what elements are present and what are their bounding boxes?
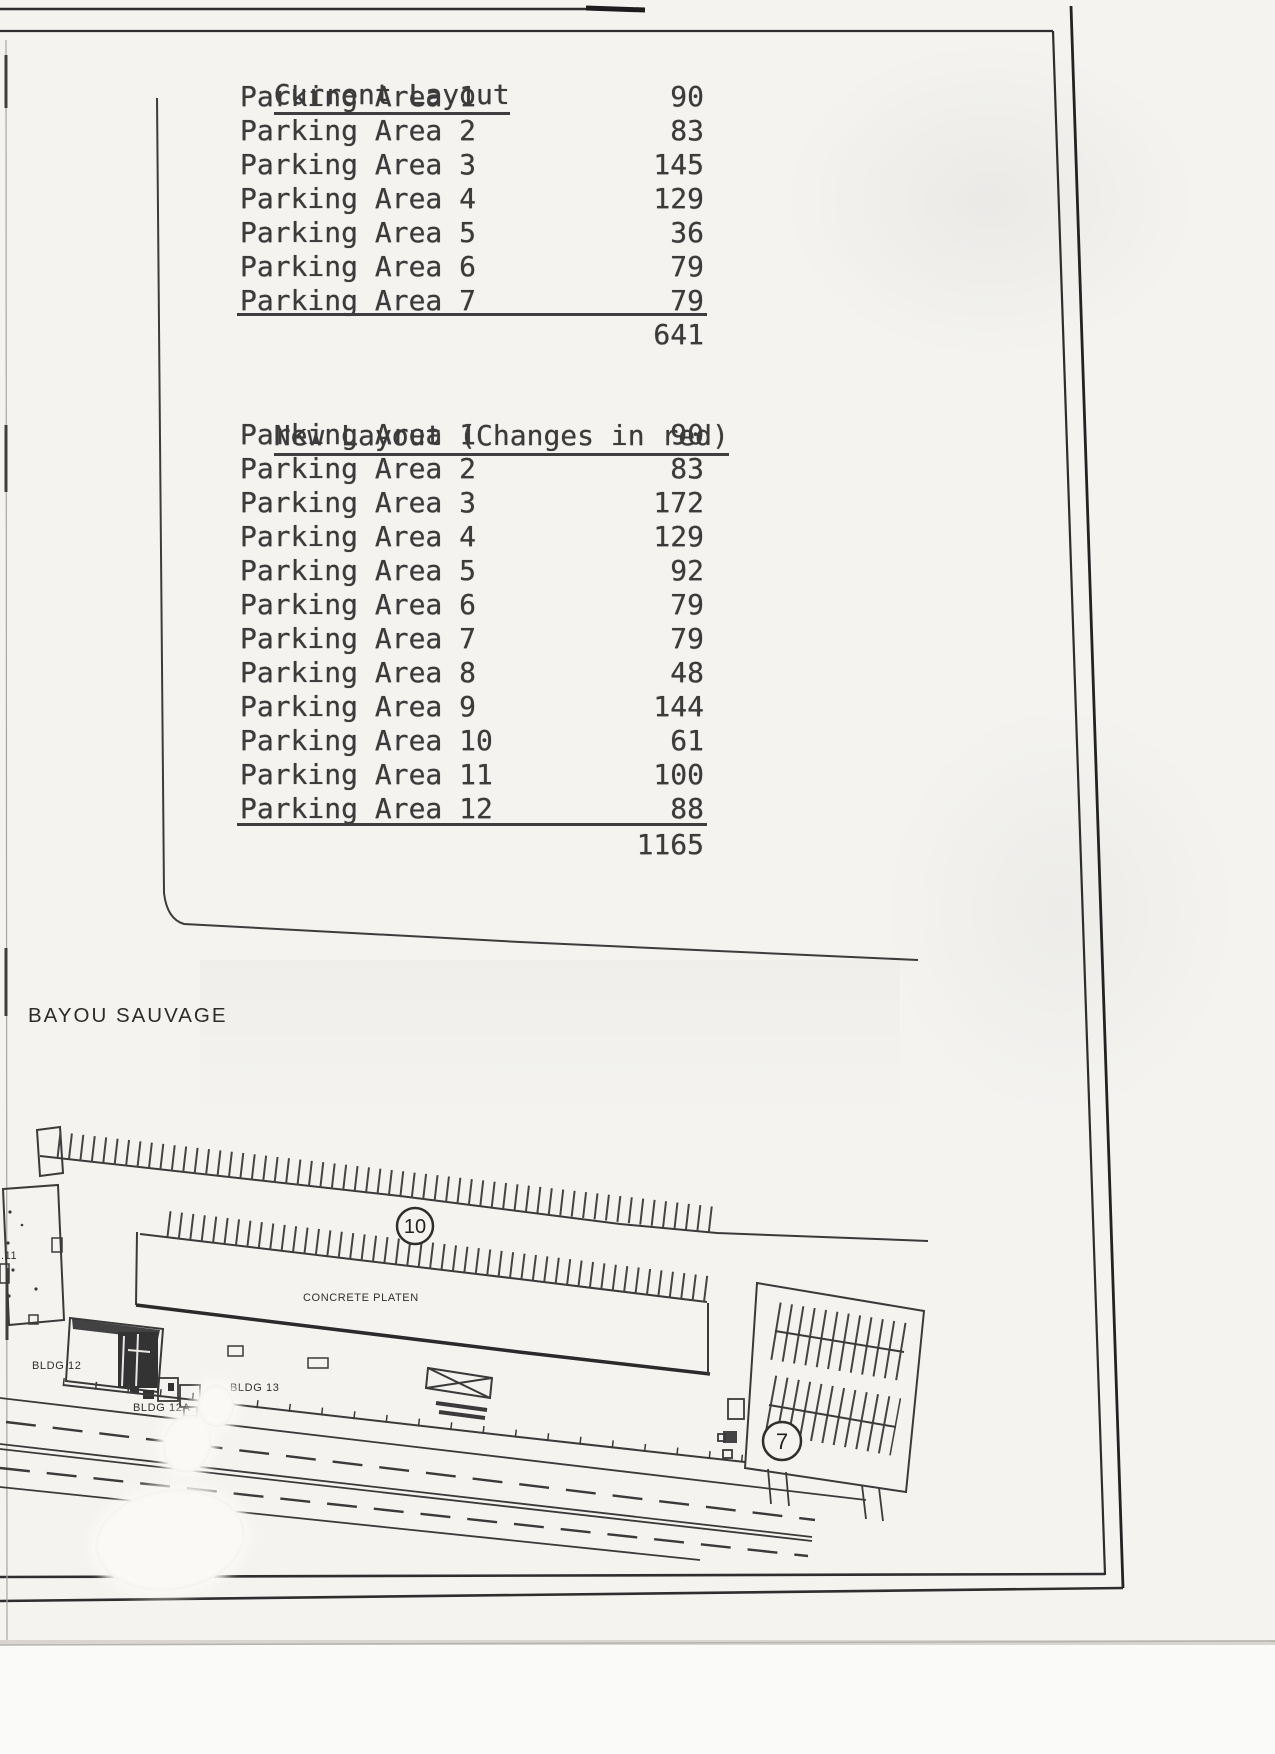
parking-row: Parking Area 190 (240, 80, 704, 114)
paper-bottom-edge (0, 1640, 1275, 1645)
parking-row-label: Parking Area 2 (240, 452, 476, 486)
concrete-platen-slab (136, 1232, 710, 1374)
area-markers: 10 7 (397, 1208, 801, 1460)
parking-row-value: 144 (653, 690, 704, 724)
parking-row-label: Parking Area 4 (240, 520, 476, 554)
parking-row: Parking Area 11100 (240, 758, 704, 792)
parking-row-label: Parking Area 11 (240, 758, 493, 792)
parking-row-label: Parking Area 8 (240, 656, 476, 690)
parking-row-value: 90 (670, 418, 704, 452)
parking-row: Parking Area 190 (240, 418, 704, 452)
parking-row: Parking Area 1061 (240, 724, 704, 758)
bldg-13-label: BLDG 13 (230, 1382, 279, 1394)
parking-row-label: Parking Area 5 (240, 554, 476, 588)
parking-row: Parking Area 592 (240, 554, 704, 588)
parking-row: Parking Area 4129 (240, 182, 704, 216)
parking-row: Parking Area 779 (240, 622, 704, 656)
parking-row-value: 79 (670, 250, 704, 284)
parking-row-label: Parking Area 3 (240, 486, 476, 520)
parking-row-label: Parking Area 7 (240, 622, 476, 656)
parking-row: Parking Area 3172 (240, 486, 704, 520)
parking-row-label: Parking Area 2 (240, 114, 476, 148)
parking-row-label: Parking Area 12 (240, 792, 493, 826)
parking-row-value: 145 (653, 148, 704, 182)
parking-row: Parking Area 1288 (240, 792, 704, 826)
parking-row: Parking Area 536 (240, 216, 704, 250)
parking-row-label: Parking Area 1 (240, 418, 476, 452)
parking-row: Parking Area 283 (240, 114, 704, 148)
current-layout-table: Parking Area 190Parking Area 283Parking … (240, 80, 704, 318)
concrete-platen-label: CONCRETE PLATEN (303, 1292, 419, 1304)
parking-row-value: 100 (653, 758, 704, 792)
parking-row-value: 129 (653, 182, 704, 216)
parking-row: Parking Area 283 (240, 452, 704, 486)
parking-row-value: 129 (653, 520, 704, 554)
parking-row-label: Parking Area 10 (240, 724, 493, 758)
bldg-12a-label: BLDG 12A (133, 1402, 190, 1414)
parking-row-value: 61 (670, 724, 704, 758)
parking-row-label: Parking Area 5 (240, 216, 476, 250)
parking-row-label: Parking Area 6 (240, 250, 476, 284)
parking-row-value: 92 (670, 554, 704, 588)
whiteout-smudge (198, 1385, 234, 1427)
parking-row: Parking Area 679 (240, 588, 704, 622)
parking-row: Parking Area 3145 (240, 148, 704, 182)
parking-row-value: 83 (670, 114, 704, 148)
parking-row-value: 48 (670, 656, 704, 690)
parking-row-value: 83 (670, 452, 704, 486)
parking-row-value: 172 (653, 486, 704, 520)
parking-row-value: 79 (670, 588, 704, 622)
current-total-rule (237, 313, 707, 316)
new-total-value: 1165 (440, 830, 704, 860)
parking-row: Parking Area 9144 (240, 690, 704, 724)
parking-band-top (37, 1127, 928, 1241)
parking-row-value: 79 (670, 622, 704, 656)
parking-row-label: Parking Area 4 (240, 182, 476, 216)
site-plan (0, 1127, 928, 1560)
parking-row-value: 36 (670, 216, 704, 250)
parking-row-label: Parking Area 9 (240, 690, 476, 724)
area-10-marker: 10 (404, 1216, 426, 1238)
parking-row-label: Parking Area 1 (240, 80, 476, 114)
parking-row-label: Parking Area 6 (240, 588, 476, 622)
new-layout-table: Parking Area 190Parking Area 283Parking … (240, 418, 704, 826)
bldg-12-label: BLDG 12 (32, 1360, 81, 1372)
parking-row: Parking Area 848 (240, 656, 704, 690)
bayou-sauvage-label: BAYOU SAUVAGE (28, 1004, 228, 1027)
parking-row-value: 88 (670, 792, 704, 826)
parking-lot-area7 (745, 1283, 924, 1521)
left-sheet-edge (6, 40, 7, 1640)
parking-row: Parking Area 679 (240, 250, 704, 284)
current-total-value: 641 (440, 320, 704, 350)
parking-row-value: 90 (670, 80, 704, 114)
bldg-11-label: .11 (1, 1250, 17, 1262)
new-total-rule (237, 823, 707, 826)
parking-row-label: Parking Area 3 (240, 148, 476, 182)
parking-row: Parking Area 4129 (240, 520, 704, 554)
scanned-document-page: { "document": { "tables": { "current": {… (0, 0, 1275, 1754)
scale-structures (718, 1399, 744, 1458)
area-7-marker: 7 (776, 1429, 788, 1454)
